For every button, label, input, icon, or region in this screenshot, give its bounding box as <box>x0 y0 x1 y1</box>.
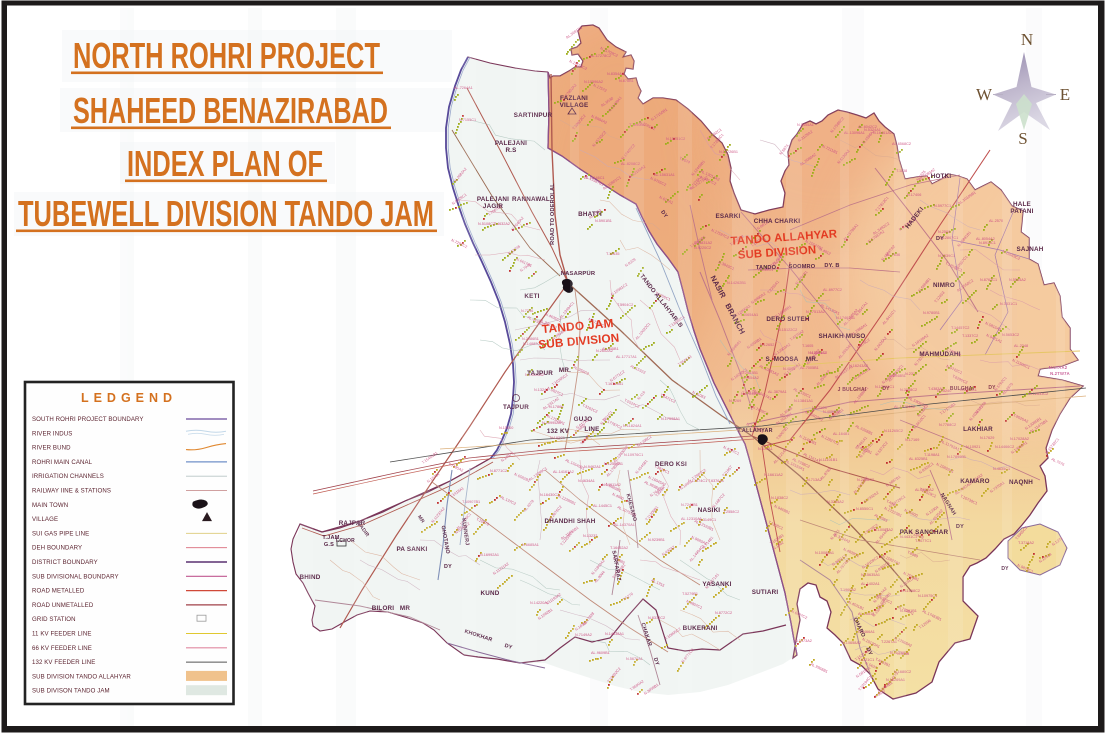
svg-text:NASIKI: NASIKI <box>698 507 721 514</box>
svg-text:E: E <box>1060 85 1070 104</box>
svg-text:AL.6325B1: AL.6325B1 <box>909 457 928 461</box>
svg-text:T.1198A1: T.1198A1 <box>924 453 940 457</box>
svg-text:RIVER INDUS: RIVER INDUS <box>32 430 72 437</box>
svg-text:KAMARO: KAMARO <box>960 478 990 485</box>
svg-text:T.CHOR: T.CHOR <box>335 538 355 544</box>
svg-text:132 KV: 132 KV <box>547 428 570 435</box>
svg-text:N.16992A1: N.16992A1 <box>480 553 499 557</box>
svg-text:N.5901B1: N.5901B1 <box>595 219 612 223</box>
svg-text:T.6376A1: T.6376A1 <box>708 479 724 483</box>
svg-text:SAJNAH: SAJNAH <box>1016 246 1043 253</box>
svg-text:TUBEWELL DIVISION TANDO JAM: TUBEWELL DIVISION TANDO JAM <box>18 193 434 234</box>
svg-text:N.17513A2: N.17513A2 <box>806 310 825 314</box>
svg-text:T.3718A2: T.3718A2 <box>1018 541 1034 545</box>
svg-text:N.17406: N.17406 <box>907 193 921 197</box>
svg-text:N.8354A2: N.8354A2 <box>607 72 624 76</box>
svg-text:MR.: MR. <box>559 367 571 374</box>
svg-text:AL.6977C2: AL.6977C2 <box>823 288 842 292</box>
svg-text:N.9780B1: N.9780B1 <box>923 311 940 315</box>
svg-text:N.713A2: N.713A2 <box>807 478 822 482</box>
svg-text:N.12633C2: N.12633C2 <box>1029 392 1048 396</box>
svg-text:DY: DY <box>444 564 452 570</box>
svg-text:ROHRI MAIN CANAL: ROHRI MAIN CANAL <box>32 459 93 466</box>
svg-text:N.4634A1: N.4634A1 <box>578 479 595 483</box>
svg-text:T.1337C2: T.1337C2 <box>962 334 978 338</box>
svg-text:DEH BOUNDARY: DEH BOUNDARY <box>32 545 82 552</box>
svg-text:AL.3879A1: AL.3879A1 <box>768 390 787 394</box>
svg-text:N.15000: N.15000 <box>499 426 513 430</box>
svg-text:N.8911C1: N.8911C1 <box>979 241 996 245</box>
svg-text:N.16611A2: N.16611A2 <box>764 473 783 477</box>
svg-text:T.12635: T.12635 <box>606 252 620 256</box>
svg-text:MAIN TOWN: MAIN TOWN <box>32 502 68 509</box>
svg-text:JAGIR: JAGIR <box>483 203 503 210</box>
svg-text:N.15635A1: N.15635A1 <box>861 573 880 577</box>
svg-text:KUND: KUND <box>481 590 500 597</box>
svg-text:66 KV FEEDER LINE: 66 KV FEEDER LINE <box>32 645 92 652</box>
svg-text:W: W <box>976 85 993 104</box>
svg-text:N.10921: N.10921 <box>966 445 980 449</box>
svg-text:N.8550C1: N.8550C1 <box>856 507 873 511</box>
svg-text:GRID STATION: GRID STATION <box>32 616 76 623</box>
svg-text:AL.9609B1: AL.9609B1 <box>591 651 610 655</box>
svg-text:YASANKI: YASANKI <box>702 581 731 588</box>
svg-text:N.16430C2: N.16430C2 <box>540 493 559 497</box>
svg-text:DISTRICT BOUNDARY: DISTRICT BOUNDARY <box>32 559 98 566</box>
svg-text:N.10995A1: N.10995A1 <box>542 421 561 425</box>
svg-text:DY: DY <box>936 236 944 242</box>
svg-text:AL.1402A1: AL.1402A1 <box>861 582 880 586</box>
svg-text:PATANI: PATANI <box>1010 208 1033 215</box>
svg-text:N.8762C1: N.8762C1 <box>980 278 997 282</box>
svg-text:T.4632A2: T.4632A2 <box>494 222 510 226</box>
svg-text:N.14638A1: N.14638A1 <box>605 632 624 636</box>
svg-text:HALE: HALE <box>1013 201 1031 208</box>
svg-text:N: N <box>1021 30 1033 49</box>
svg-text:ROAD UNMETALLED: ROAD UNMETALLED <box>32 602 94 609</box>
svg-text:LEDGEND: LEDGEND <box>81 391 177 405</box>
svg-text:N.17169: N.17169 <box>905 438 919 442</box>
svg-text:ROAD TO ODEROLAL: ROAD TO ODEROLAL <box>550 183 556 245</box>
svg-text:T.16715B1: T.16715B1 <box>605 382 623 386</box>
svg-text:SUB DIVISIONAL BOUNDARY: SUB DIVISIONAL BOUNDARY <box>32 573 119 580</box>
svg-text:LAKHIAR: LAKHIAR <box>963 426 993 433</box>
svg-text:LINE: LINE <box>584 426 599 433</box>
svg-text:ROAD METALLED: ROAD METALLED <box>32 588 85 595</box>
svg-text:INDEX PLAN OF: INDEX PLAN OF <box>127 143 323 184</box>
svg-text:IRRIGATION CHANNELS: IRRIGATION CHANNELS <box>32 473 104 480</box>
svg-text:N.13232: N.13232 <box>583 534 597 538</box>
svg-text:N.17598A1: N.17598A1 <box>661 417 680 421</box>
svg-text:N.17629: N.17629 <box>980 436 994 440</box>
svg-text:11 KV FEEDER LINE: 11 KV FEEDER LINE <box>32 631 92 638</box>
svg-text:AL.1445C1: AL.1445C1 <box>593 504 612 508</box>
svg-text:N.17028A2: N.17028A2 <box>1010 437 1029 441</box>
svg-text:SUB DIVISON TANDO JAM: SUB DIVISON TANDO JAM <box>32 688 110 695</box>
svg-text:AL.7005B1: AL.7005B1 <box>800 366 819 370</box>
svg-text:DY: DY <box>882 386 890 392</box>
svg-text:G.S: G.S <box>324 542 334 548</box>
svg-text:SUI GAS PIPE LINE: SUI GAS PIPE LINE <box>32 530 89 537</box>
svg-text:N.8772C2: N.8772C2 <box>715 611 732 615</box>
svg-text:SUB DIVISION TANDO ALLAHYAR: SUB DIVISION TANDO ALLAHYAR <box>32 673 131 680</box>
svg-text:BILORI: BILORI <box>372 605 395 612</box>
svg-text:NAQNH: NAQNH <box>1009 479 1033 486</box>
svg-text:AL.15631A1: AL.15631A1 <box>654 173 675 177</box>
svg-text:N.9462A1: N.9462A1 <box>584 465 601 469</box>
svg-text:S: S <box>1018 129 1027 148</box>
svg-text:N.9239B1: N.9239B1 <box>648 538 665 542</box>
svg-text:PALEJANI: PALEJANI <box>477 196 509 203</box>
svg-text:SOUTH ROHRI PROJECT BOUNDARY: SOUTH ROHRI PROJECT BOUNDARY <box>32 416 144 423</box>
svg-text:RAILWAY IINE & STATIONS: RAILWAY IINE & STATIONS <box>32 488 111 495</box>
svg-text:N.8771C2: N.8771C2 <box>490 469 507 473</box>
svg-text:MR.: MR. <box>806 356 818 363</box>
svg-text:T.4383A1: T.4383A1 <box>928 387 944 391</box>
svg-text:T.9077C1: T.9077C1 <box>915 539 931 543</box>
svg-text:N.10975C1: N.10975C1 <box>918 594 937 598</box>
svg-text:N.10088A1: N.10088A1 <box>815 551 834 555</box>
svg-text:N.12652: N.12652 <box>760 343 774 347</box>
svg-text:RIVER BUND: RIVER BUND <box>32 445 71 452</box>
svg-text:N.2602A2: N.2602A2 <box>596 349 613 353</box>
svg-text:N.416A1: N.416A1 <box>758 447 773 451</box>
svg-text:VILLAGE: VILLAGE <box>32 516 58 523</box>
svg-text:N.11101B1: N.11101B1 <box>819 458 837 462</box>
svg-text:N.8312C2: N.8312C2 <box>648 616 665 620</box>
svg-text:R.S: R.S <box>505 147 516 154</box>
svg-text:AL.6042C2: AL.6042C2 <box>858 125 877 129</box>
svg-text:NORTH ROHRI PROJECT: NORTH ROHRI PROJECT <box>73 35 380 76</box>
svg-text:AL.2570: AL.2570 <box>989 219 1003 223</box>
svg-text:PAK SANGHAR: PAK SANGHAR <box>900 529 949 536</box>
svg-text:132 KV FEEDER LINE: 132 KV FEEDER LINE <box>32 659 95 666</box>
svg-text:SUTIARI: SUTIARI <box>752 589 779 596</box>
svg-text:N.5108C2: N.5108C2 <box>478 222 495 226</box>
svg-text:T.1605: T.1605 <box>802 344 813 348</box>
svg-text:SHAHEED BENAZIRABAD: SHAHEED BENAZIRABAD <box>73 90 388 131</box>
svg-text:DY: DY <box>988 385 996 391</box>
svg-text:TANDO: TANDO <box>756 265 777 271</box>
svg-text:N.1838C2: N.1838C2 <box>771 496 788 500</box>
svg-text:BHATTI: BHATTI <box>578 211 602 218</box>
svg-text:N.192C1: N.192C1 <box>550 436 565 440</box>
svg-text:AL.17278C2: AL.17278C2 <box>590 54 611 58</box>
svg-text:N.9220C2: N.9220C2 <box>694 246 711 250</box>
svg-text:AL.2348: AL.2348 <box>1014 344 1028 348</box>
svg-text:DY. B: DY. B <box>824 263 839 269</box>
svg-text:N.10087A2: N.10087A2 <box>874 528 893 532</box>
